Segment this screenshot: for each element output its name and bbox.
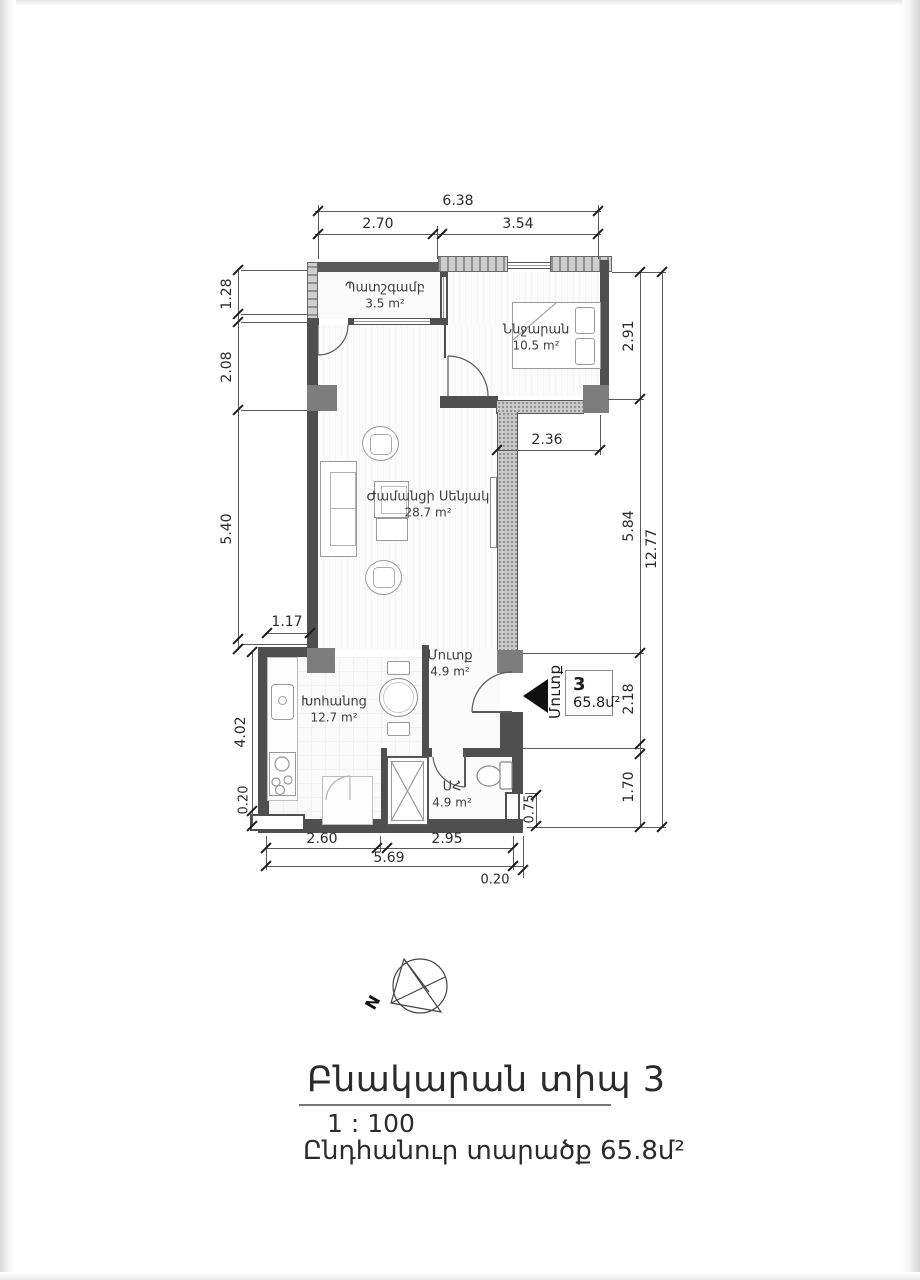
dim-line	[315, 211, 601, 212]
dim-bottom-c: 0.20	[481, 873, 510, 888]
balcony-name: Պատշգամբ	[345, 280, 425, 296]
dim-right-d: 1.70	[621, 771, 637, 802]
bathroom-name: ՍՀ	[432, 779, 471, 795]
dim-left-a: 1.28	[219, 278, 235, 309]
dim-top-total: 6.38	[442, 193, 473, 209]
bedroom-door-arc	[448, 356, 488, 396]
closet-door-arc	[326, 776, 350, 800]
title-underline	[299, 1104, 611, 1106]
entrance-arrow-icon	[523, 679, 548, 713]
dim-bottom-total: 5.69	[373, 850, 404, 866]
compass-line-2	[404, 959, 429, 992]
ext-line	[241, 314, 307, 315]
entrance-label-vertical: Մուտք	[546, 671, 564, 719]
bathroom-area: 4.9 m²	[432, 796, 471, 811]
unit-area: 65.8մ²	[573, 695, 612, 711]
bedroom-label: Ննջարան 10.5 m²	[503, 322, 570, 353]
dim-right-b: 5.84	[621, 510, 637, 541]
dim-inner-a: 2.36	[531, 432, 562, 448]
hall-name: Մուտք	[427, 648, 472, 664]
stove-burner-3	[284, 776, 292, 784]
total-area-label: Ընդհանուր տարածք 65.8մ²	[303, 1136, 685, 1166]
compass-needle	[391, 959, 441, 1012]
living-label: Ժամանցի Սենյակ 28.7 m²	[367, 489, 490, 520]
dim-top-b: 3.54	[502, 216, 533, 232]
compass-line-1	[391, 977, 445, 1003]
dim-line	[315, 234, 601, 235]
ext-line	[523, 653, 644, 654]
entrance-door-arc	[472, 672, 512, 712]
living-name: Ժամանցի Սենյակ	[367, 489, 490, 505]
unit-number: 3	[573, 674, 612, 695]
kitchen-name: Խոհանոց	[301, 694, 367, 710]
living-area: 28.7 m²	[367, 506, 490, 521]
dim-line	[238, 268, 239, 650]
balcony-label: Պատշգամբ 3.5 m²	[345, 280, 425, 311]
dim-right-a: 2.91	[621, 320, 637, 351]
dim-line	[266, 866, 523, 867]
dim-right-total: 12.77	[644, 529, 660, 569]
dim-line	[497, 450, 600, 451]
scale-label: 1 : 100	[327, 1109, 415, 1138]
dim-right-c: 2.18	[621, 683, 637, 714]
ext-line	[523, 748, 644, 749]
dim-line	[252, 650, 253, 827]
dim-left-e: 0.20	[237, 786, 252, 815]
hall-label: Մուտք 4.9 m²	[427, 648, 472, 679]
bedroom-area: 10.5 m²	[503, 339, 570, 354]
ext-line	[241, 410, 307, 411]
page-title: Բնակարան տիպ 3	[307, 1060, 666, 1100]
stove-burner-1	[275, 757, 289, 771]
ext-line	[523, 836, 524, 878]
bedroom-name: Ննջարան	[503, 322, 570, 338]
hall-area: 4.9 m²	[427, 665, 472, 680]
dim-inner-c: 0.75	[523, 795, 538, 824]
dim-line	[267, 633, 310, 634]
dim-left-d: 4.02	[233, 716, 249, 747]
unit-info-box: 3 65.8մ²	[565, 670, 613, 716]
balcony-area: 3.5 m²	[345, 297, 425, 312]
toilet-bowl	[477, 766, 501, 786]
kitchen-label: Խոհանոց 12.7 m²	[301, 694, 367, 725]
dim-bottom-b: 2.95	[431, 831, 462, 847]
floor-plan-page: Մուտք 3 65.8մ² Պատշգամբ 3.5 m² Ննջարան 1…	[0, 0, 920, 1280]
ext-line	[241, 322, 307, 323]
stove-burner-4	[276, 786, 285, 795]
dim-bottom-a: 2.60	[306, 831, 337, 847]
balcony-door-arc	[318, 325, 348, 355]
ext-line	[527, 827, 666, 828]
dim-line	[662, 272, 663, 827]
toilet-tank	[500, 762, 512, 789]
kitchen-area: 12.7 m²	[301, 711, 367, 726]
dim-inner-b: 1.17	[271, 614, 302, 630]
ext-line	[241, 644, 307, 645]
bathroom-label: ՍՀ 4.9 m²	[432, 779, 471, 810]
dim-left-b: 2.08	[219, 351, 235, 382]
stove-burner-2	[272, 778, 280, 786]
dim-top-a: 2.70	[362, 216, 393, 232]
dim-left-c: 5.40	[219, 513, 235, 544]
dim-line	[266, 848, 513, 849]
ext-line	[241, 270, 307, 271]
